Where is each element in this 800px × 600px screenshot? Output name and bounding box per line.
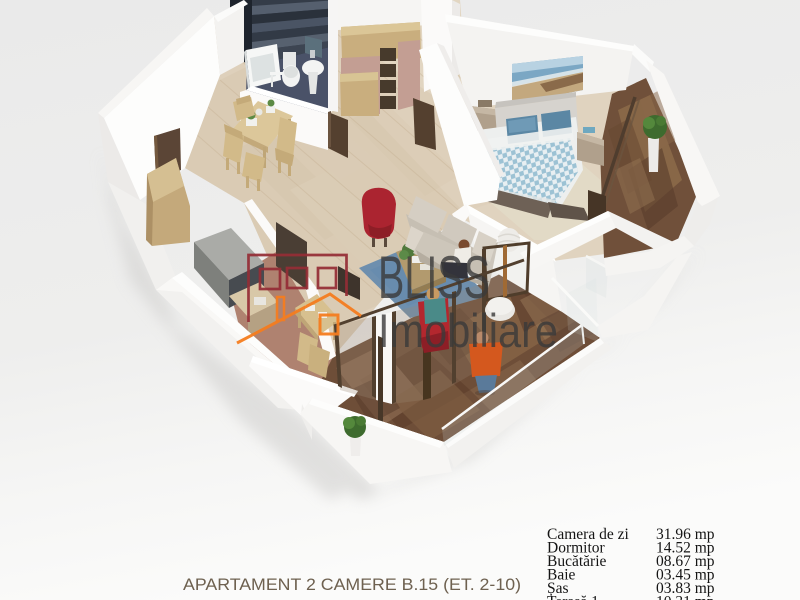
svg-text:APARTAMENT 2 CAMERE B.15 (ET.: APARTAMENT 2 CAMERE B.15 (ET. 2-10) (183, 576, 521, 594)
svg-text:10.31 mp: 10.31 mp (656, 594, 715, 600)
svg-text:BLISS: BLISS (378, 244, 490, 311)
svg-text:Terasă 1: Terasă 1 (547, 594, 599, 600)
svg-text:Imobiliare: Imobiliare (378, 304, 558, 357)
